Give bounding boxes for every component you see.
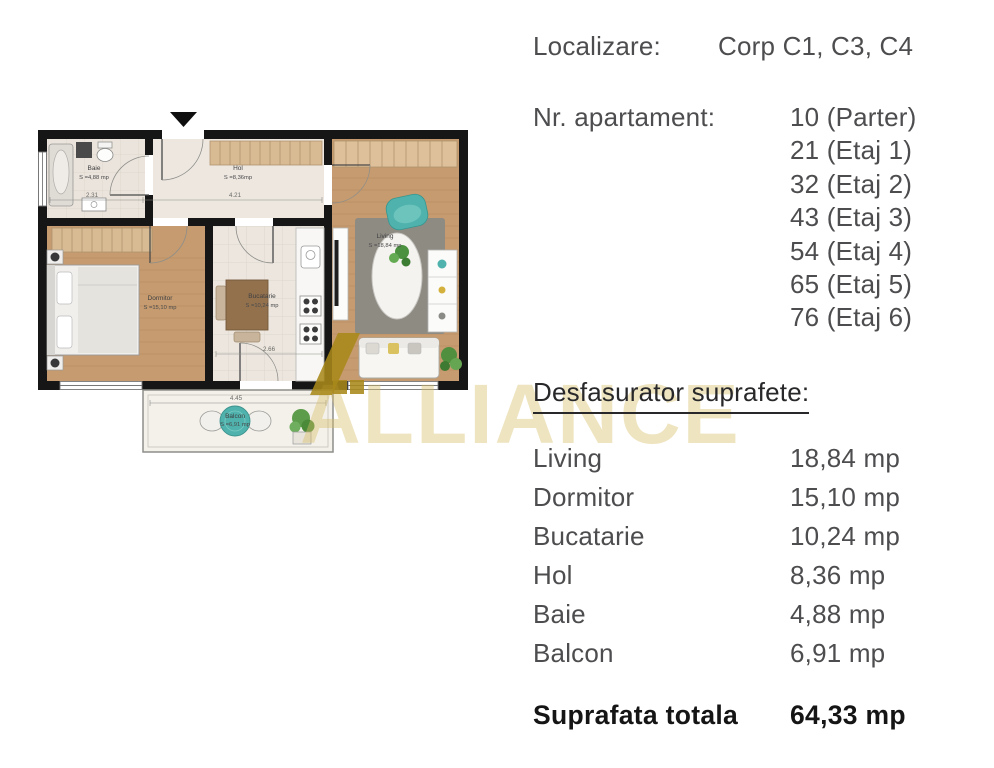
details-panel: Localizare: Corp C1, C3, C4 Nr. apartame… (0, 0, 994, 768)
apartament-item: 65 (Etaj 5) (790, 268, 916, 301)
apartament-item: 10 (Parter) (790, 101, 916, 134)
apartament-list: 10 (Parter) 21 (Etaj 1) 32 (Etaj 2) 43 (… (790, 101, 916, 335)
surface-room: Dormitor (533, 478, 790, 517)
total-label: Suprafata totala (533, 700, 790, 731)
localizare-value: Corp C1, C3, C4 (718, 31, 913, 62)
surface-row: Baie 4,88 mp (533, 595, 900, 634)
apartament-item: 21 (Etaj 1) (790, 134, 916, 167)
surface-room: Balcon (533, 634, 790, 673)
surface-area: 6,91 mp (790, 634, 885, 673)
surface-area: 8,36 mp (790, 556, 885, 595)
total-value: 64,33 mp (790, 700, 906, 731)
surface-row: Balcon 6,91 mp (533, 634, 900, 673)
apartament-item: 76 (Etaj 6) (790, 301, 916, 334)
surface-area: 10,24 mp (790, 517, 900, 556)
apartament-row: Nr. apartament: 10 (Parter) 21 (Etaj 1) … (533, 101, 916, 335)
apartament-item: 54 (Etaj 4) (790, 235, 916, 268)
apartament-item: 32 (Etaj 2) (790, 168, 916, 201)
surface-row: Dormitor 15,10 mp (533, 478, 900, 517)
apartament-label: Nr. apartament: (533, 101, 790, 134)
total-row: Suprafata totala 64,33 mp (533, 700, 906, 731)
surface-room: Baie (533, 595, 790, 634)
surface-row: Living 18,84 mp (533, 439, 900, 478)
surfaces-heading-wrap: Desfasurator suprafete: (533, 377, 809, 414)
surface-area: 18,84 mp (790, 439, 900, 478)
apartment-listing-page: 2.31 4.21 2.66 4.45 Baie S =4,88 mp Hol … (0, 0, 994, 768)
surface-room: Hol (533, 556, 790, 595)
surface-room: Bucatarie (533, 517, 790, 556)
surface-room: Living (533, 439, 790, 478)
surface-row: Hol 8,36 mp (533, 556, 900, 595)
surfaces-heading: Desfasurator suprafete: (533, 377, 809, 414)
localizare-label: Localizare: (533, 31, 718, 62)
apartament-item: 43 (Etaj 3) (790, 201, 916, 234)
surface-row: Bucatarie 10,24 mp (533, 517, 900, 556)
surface-area: 4,88 mp (790, 595, 885, 634)
surfaces-table: Living 18,84 mp Dormitor 15,10 mp Bucata… (533, 439, 900, 673)
localizare-row: Localizare: Corp C1, C3, C4 (533, 31, 913, 62)
surface-area: 15,10 mp (790, 478, 900, 517)
